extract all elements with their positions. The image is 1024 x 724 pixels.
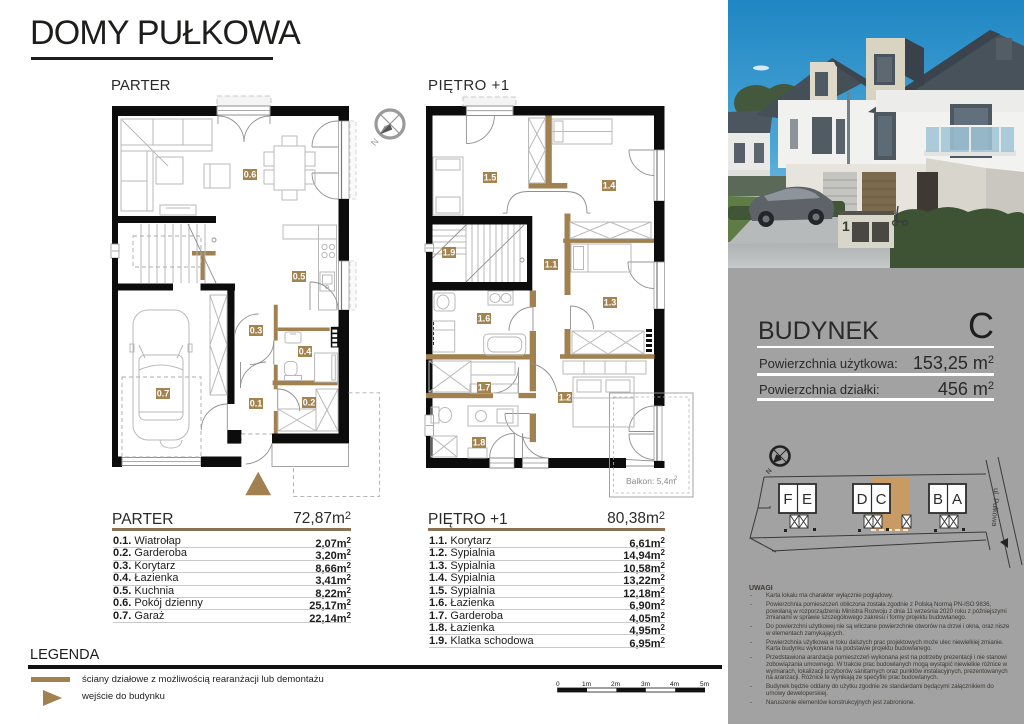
svg-text:F: F <box>783 491 792 508</box>
svg-text:D: D <box>857 491 868 508</box>
svg-text:1m: 1m <box>582 681 591 688</box>
svg-text:1.9: 1.9 <box>443 248 456 258</box>
svg-text:1.7: 1.7 <box>478 383 491 393</box>
svg-text:0.1: 0.1 <box>250 399 263 409</box>
svg-text:0.5: 0.5 <box>293 272 306 282</box>
svg-text:C: C <box>876 491 887 508</box>
svg-text:A: A <box>952 491 962 508</box>
svg-text:1.3: 1.3 <box>604 298 617 308</box>
svg-text:Balkon: 5,4m: Balkon: 5,4m <box>626 476 676 486</box>
svg-text:3m: 3m <box>641 681 650 688</box>
svg-text:0.4: 0.4 <box>299 347 312 357</box>
svg-text:1.4: 1.4 <box>603 181 616 191</box>
svg-text:5m: 5m <box>700 681 709 688</box>
svg-text:4m: 4m <box>670 681 679 688</box>
svg-text:N: N <box>765 467 774 475</box>
svg-text:N: N <box>369 136 381 147</box>
svg-text:1: 1 <box>842 218 850 234</box>
svg-text:1.2: 1.2 <box>559 393 572 403</box>
svg-text:1.8: 1.8 <box>473 438 486 448</box>
svg-text:0: 0 <box>556 681 560 688</box>
svg-text:2: 2 <box>674 476 678 482</box>
svg-text:0.2: 0.2 <box>303 398 316 408</box>
svg-text:1.6: 1.6 <box>478 314 491 324</box>
svg-text:2m: 2m <box>611 681 620 688</box>
svg-text:E: E <box>802 491 812 508</box>
svg-text:1.1: 1.1 <box>545 260 558 270</box>
svg-text:0.7: 0.7 <box>157 389 170 399</box>
svg-text:0.3: 0.3 <box>250 326 263 336</box>
svg-text:ul. Pułkowa: ul. Pułkowa <box>990 488 1001 528</box>
svg-text:0.6: 0.6 <box>244 170 257 180</box>
svg-text:1.5: 1.5 <box>484 173 497 183</box>
svg-text:B: B <box>933 491 943 508</box>
